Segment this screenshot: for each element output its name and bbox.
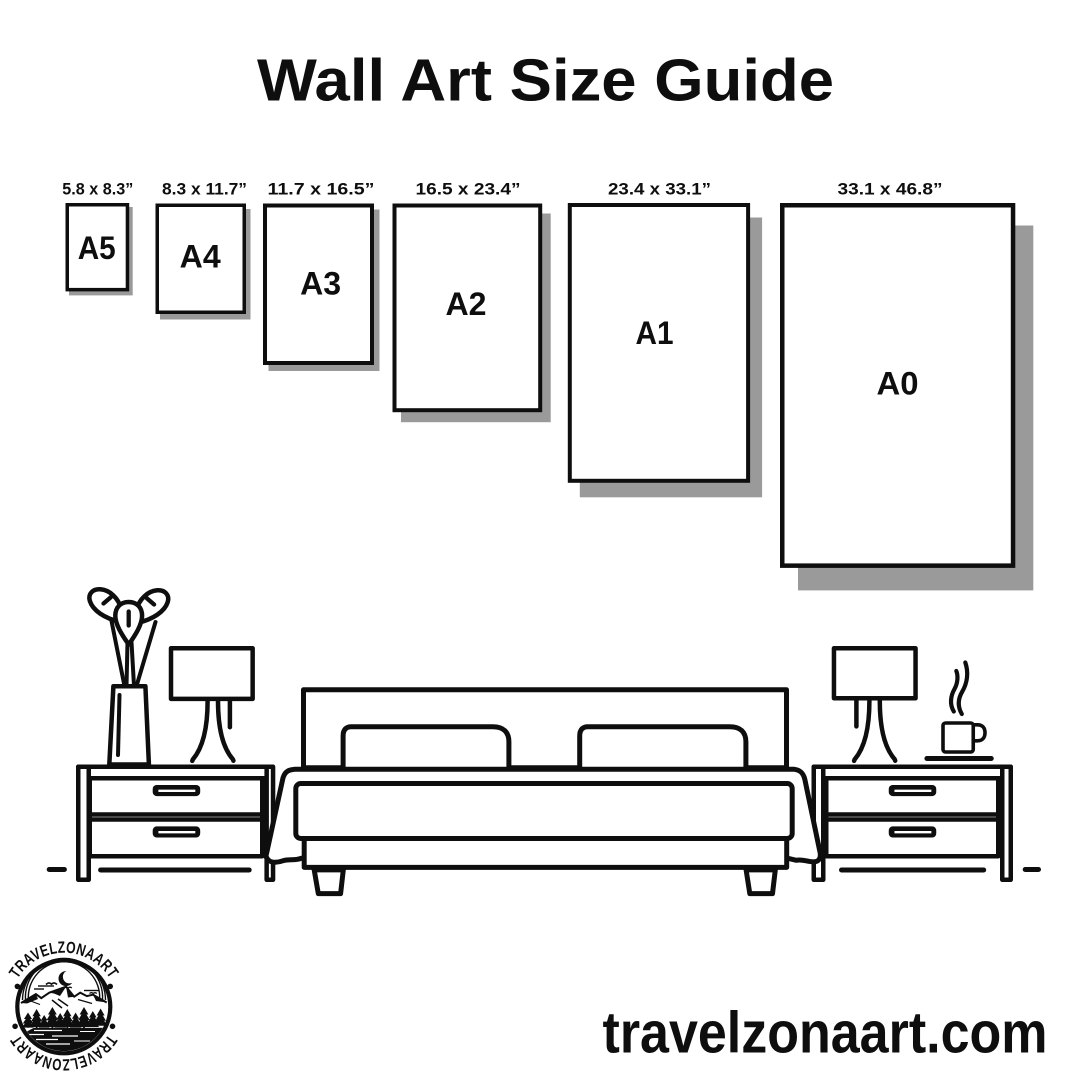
svg-text:Wall Art Size Guide: Wall Art Size Guide [257, 48, 834, 114]
svg-text:A3: A3 [300, 266, 341, 302]
svg-text:A5: A5 [78, 230, 116, 266]
svg-text:A4: A4 [180, 239, 221, 275]
svg-text:33.1 x 46.8”: 33.1 x 46.8” [838, 180, 943, 199]
svg-text:23.4 x 33.1”: 23.4 x 33.1” [608, 180, 711, 199]
svg-text:8.3 x 11.7”: 8.3 x 11.7” [162, 180, 247, 199]
svg-text:travelzonaart.com: travelzonaart.com [603, 1001, 1048, 1066]
svg-text:16.5 x 23.4”: 16.5 x 23.4” [416, 180, 521, 199]
svg-text:A2: A2 [446, 286, 487, 322]
svg-text:A1: A1 [636, 315, 674, 351]
svg-text:A0: A0 [877, 366, 919, 402]
svg-text:11.7 x 16.5”: 11.7 x 16.5” [268, 180, 375, 199]
svg-text:5.8 x 8.3”: 5.8 x 8.3” [62, 180, 133, 199]
